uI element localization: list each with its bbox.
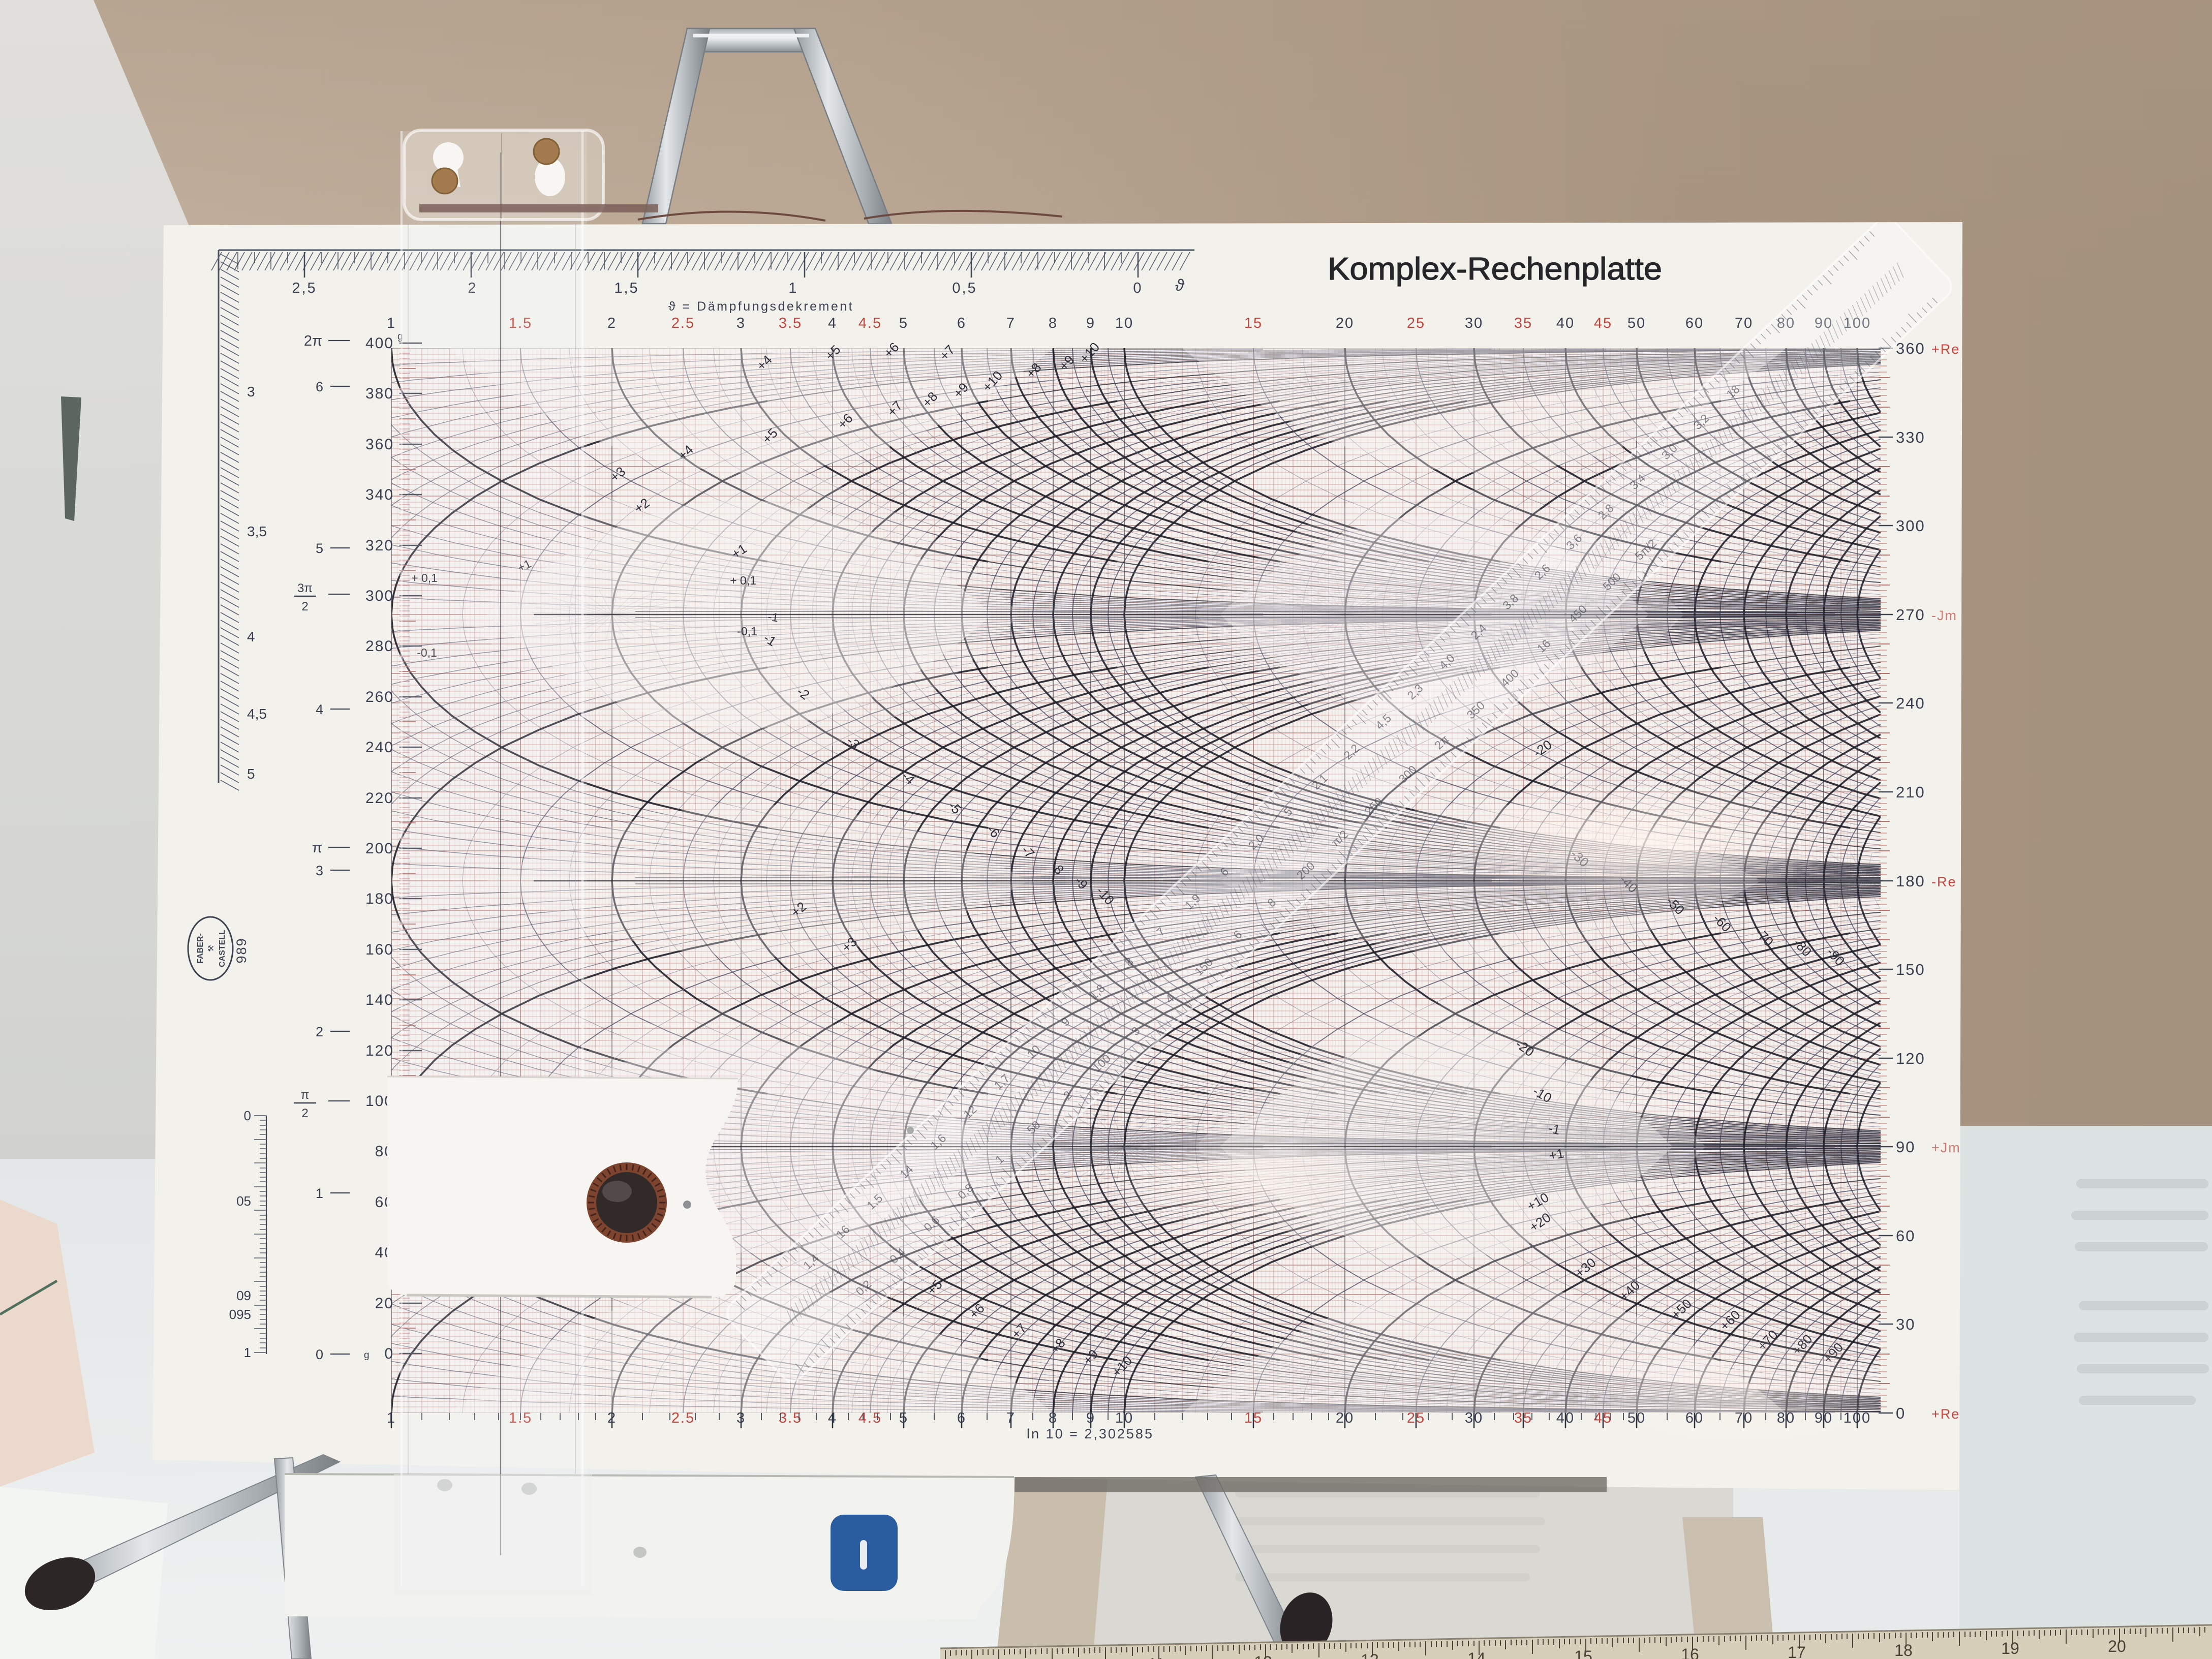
svg-text:+1: +1 — [1548, 1145, 1565, 1163]
svg-text:260: 260 — [365, 689, 394, 705]
svg-text:10: 10 — [1040, 1657, 1059, 1659]
svg-text:ln 10 = 2,302585: ln 10 = 2,302585 — [1027, 1426, 1154, 1441]
svg-text:240: 240 — [1896, 694, 1925, 712]
svg-text:2: 2 — [301, 1107, 308, 1120]
svg-text:4: 4 — [247, 629, 255, 644]
svg-text:1: 1 — [316, 1186, 323, 1201]
svg-text:3: 3 — [736, 315, 746, 331]
svg-text:50: 50 — [1627, 315, 1646, 331]
svg-text:05: 05 — [236, 1193, 251, 1209]
svg-text:095: 095 — [229, 1307, 251, 1322]
svg-text:4,5: 4,5 — [247, 706, 267, 722]
svg-text:1: 1 — [244, 1345, 251, 1360]
svg-text:09: 09 — [236, 1288, 251, 1303]
svg-text:2: 2 — [301, 600, 308, 613]
svg-text:5: 5 — [316, 541, 323, 556]
svg-text:400: 400 — [365, 335, 394, 352]
svg-text:7: 7 — [1006, 315, 1016, 331]
svg-text:5: 5 — [899, 315, 908, 331]
svg-text:2: 2 — [316, 1024, 323, 1039]
svg-text:8: 8 — [1049, 315, 1058, 331]
svg-text:210: 210 — [1896, 783, 1925, 801]
svg-text:270: 270 — [1896, 606, 1925, 624]
svg-text:11: 11 — [1148, 1655, 1164, 1659]
svg-text:120: 120 — [1896, 1050, 1925, 1067]
svg-text:180: 180 — [365, 890, 394, 907]
svg-text:14: 14 — [1467, 1649, 1486, 1659]
svg-text:13: 13 — [1361, 1651, 1379, 1659]
svg-text:2.5: 2.5 — [671, 1410, 695, 1426]
svg-text:15: 15 — [1574, 1647, 1592, 1659]
svg-text:3π: 3π — [297, 581, 313, 595]
svg-text:4: 4 — [828, 315, 837, 331]
svg-text:2,5: 2,5 — [292, 280, 317, 296]
svg-text:0: 0 — [1133, 280, 1143, 296]
svg-text:330: 330 — [1896, 428, 1925, 446]
svg-text:340: 340 — [365, 486, 394, 503]
svg-text:17: 17 — [1788, 1643, 1806, 1659]
svg-text:40: 40 — [1556, 315, 1575, 331]
svg-text:1: 1 — [387, 315, 396, 331]
svg-text:150: 150 — [1896, 961, 1925, 978]
svg-text:20: 20 — [2108, 1637, 2126, 1655]
svg-text:12: 12 — [1254, 1653, 1272, 1659]
svg-text:4.5: 4.5 — [858, 315, 882, 331]
svg-text:16: 16 — [1681, 1645, 1699, 1659]
svg-text:18: 18 — [1894, 1641, 1913, 1659]
svg-text:19: 19 — [2001, 1639, 2019, 1657]
svg-text:9: 9 — [1086, 315, 1095, 331]
svg-text:380: 380 — [365, 385, 394, 402]
svg-text:-Jm: -Jm — [1931, 608, 1957, 623]
svg-text:10: 10 — [1115, 315, 1133, 331]
svg-text:3: 3 — [247, 384, 255, 400]
svg-text:+ 0,1: + 0,1 — [730, 574, 756, 587]
svg-text:35: 35 — [1514, 315, 1532, 331]
svg-text:160: 160 — [365, 941, 394, 958]
svg-text:+Jm: +Jm — [1931, 1140, 1961, 1155]
svg-text:240: 240 — [365, 739, 394, 756]
svg-text:280: 280 — [365, 638, 394, 655]
svg-text:360: 360 — [365, 436, 394, 453]
svg-text:3: 3 — [316, 863, 323, 878]
svg-text:90: 90 — [1896, 1138, 1915, 1156]
svg-text:25: 25 — [1407, 315, 1425, 331]
svg-text:20: 20 — [375, 1295, 394, 1312]
svg-text:180: 180 — [1896, 872, 1925, 890]
svg-text:Komplex-Rechenplatte: Komplex-Rechenplatte — [1328, 252, 1662, 287]
svg-text:2.5: 2.5 — [671, 315, 695, 331]
svg-text:60: 60 — [1896, 1227, 1915, 1245]
svg-text:300: 300 — [365, 588, 394, 604]
svg-text:360: 360 — [1896, 340, 1925, 357]
svg-text:-1: -1 — [767, 610, 779, 625]
svg-text:FABER-: FABER- — [196, 933, 205, 964]
svg-text:30: 30 — [1465, 315, 1483, 331]
svg-text:220: 220 — [365, 790, 394, 807]
svg-text:45: 45 — [1594, 315, 1612, 331]
svg-text:-Re: -Re — [1931, 874, 1957, 889]
svg-text:3,5: 3,5 — [247, 524, 267, 539]
svg-text:⚒: ⚒ — [207, 945, 216, 951]
svg-text:300: 300 — [1896, 517, 1925, 535]
svg-text:4.5: 4.5 — [858, 1410, 882, 1426]
svg-text:2: 2 — [607, 315, 617, 331]
svg-text:70: 70 — [1735, 315, 1753, 331]
svg-text:0: 0 — [316, 1347, 323, 1362]
svg-text:2π: 2π — [304, 333, 322, 349]
svg-text:-0,1: -0,1 — [737, 625, 757, 638]
svg-text:320: 320 — [365, 537, 394, 554]
svg-text:989: 989 — [234, 937, 249, 963]
svg-text:ϑ: ϑ — [1175, 276, 1185, 294]
svg-text:π: π — [312, 840, 322, 856]
svg-text:0: 0 — [1896, 1404, 1906, 1422]
svg-text:6: 6 — [316, 379, 323, 394]
svg-text:0,5: 0,5 — [952, 280, 977, 296]
svg-text:15: 15 — [1244, 315, 1263, 331]
svg-text:200: 200 — [365, 840, 394, 857]
svg-text:3.5: 3.5 — [779, 315, 802, 331]
svg-text:π: π — [301, 1088, 310, 1102]
svg-text:ϑ = Dämpfungsdekrement: ϑ = Dämpfungsdekrement — [668, 299, 854, 314]
svg-text:5: 5 — [247, 766, 255, 782]
svg-text:140: 140 — [365, 992, 394, 1008]
svg-text:0: 0 — [384, 1345, 394, 1362]
svg-text:30: 30 — [1896, 1315, 1915, 1333]
svg-text:1: 1 — [788, 280, 798, 296]
svg-text:+Re: +Re — [1931, 1406, 1960, 1422]
svg-text:20: 20 — [1336, 315, 1354, 331]
svg-text:0: 0 — [244, 1108, 251, 1123]
svg-text:120: 120 — [365, 1042, 394, 1059]
svg-text:g: g — [364, 1350, 370, 1361]
svg-text:6: 6 — [957, 315, 966, 331]
svg-text:CASTELL: CASTELL — [218, 930, 227, 967]
svg-text:1,5: 1,5 — [614, 280, 639, 296]
svg-text:4: 4 — [316, 702, 323, 717]
svg-text:60: 60 — [1685, 315, 1704, 331]
svg-text:+Re: +Re — [1931, 342, 1960, 357]
